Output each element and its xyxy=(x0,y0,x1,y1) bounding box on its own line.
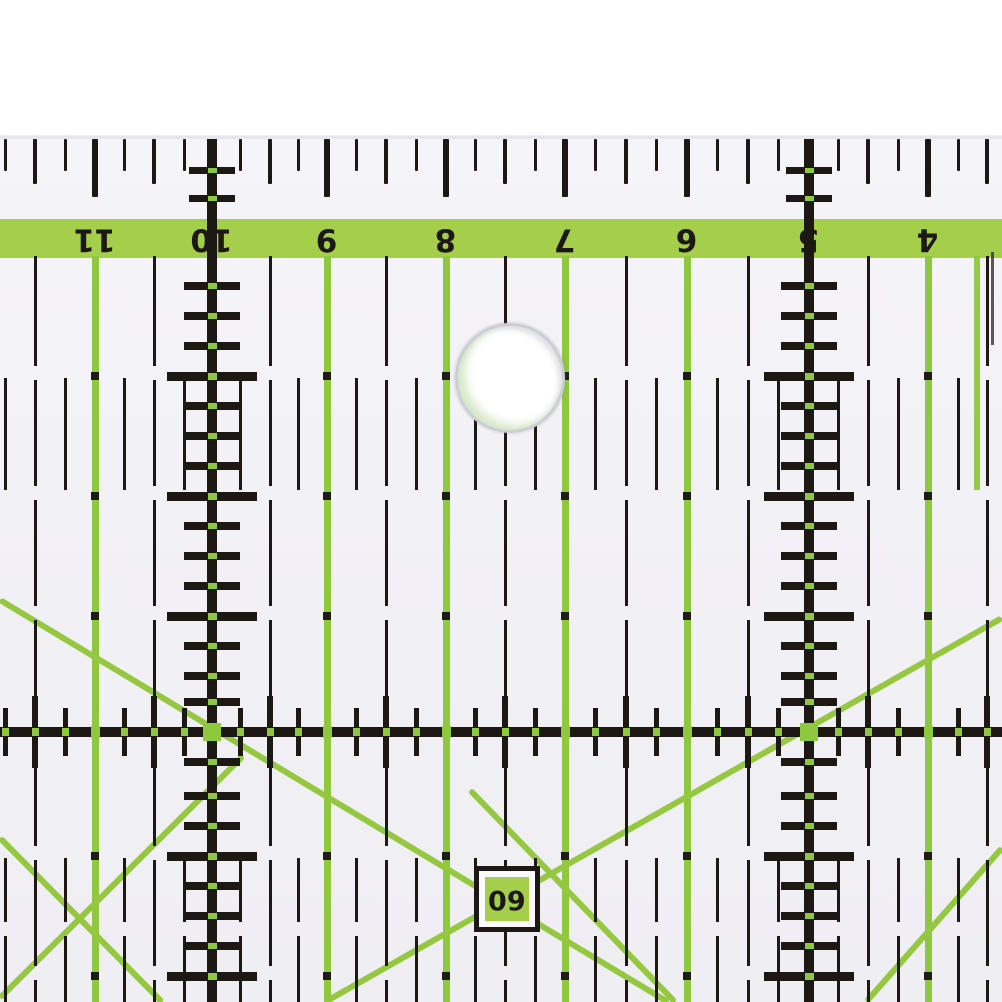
cross-tick-green-center xyxy=(805,403,814,409)
grid-line-dashed-quarter xyxy=(4,858,7,1002)
grid-line-dashed-quarter xyxy=(594,858,597,1002)
cross-tick-green-center xyxy=(984,728,991,736)
grid-dot xyxy=(323,492,331,500)
edge-tick-mark xyxy=(684,139,690,197)
grid-line-green xyxy=(925,256,932,1002)
grid-line-dashed-quarter xyxy=(957,378,960,490)
grid-dot xyxy=(442,972,450,980)
band-number: 7 xyxy=(555,223,576,254)
cross-tick-green-center xyxy=(208,433,217,439)
cross-tick-green-center xyxy=(805,883,814,889)
cross-tick-green-center xyxy=(208,343,217,349)
edge-tick-mark xyxy=(33,139,37,184)
grid-dot xyxy=(91,612,99,620)
cross-tick-green-center xyxy=(237,728,244,736)
grid-line-dashed-half xyxy=(153,256,156,1002)
size-label-box: 60 xyxy=(474,866,540,932)
grid-dot xyxy=(442,492,450,500)
grid-line-dashed-quarter xyxy=(837,378,840,490)
band-number: 6 xyxy=(677,223,698,254)
cross-tick-green-center xyxy=(805,373,814,380)
alignment-hole xyxy=(455,323,565,433)
grid-dot xyxy=(323,852,331,860)
grid-line-dashed-half xyxy=(34,256,37,1002)
cross-tick-green-center xyxy=(805,643,814,649)
band-number: 10 xyxy=(191,223,232,254)
grid-dot xyxy=(683,852,691,860)
cross-tick-green-center xyxy=(745,728,752,736)
edge-tick-mark xyxy=(837,139,840,171)
cross-tick-green-center xyxy=(2,728,9,736)
cross-tick-green-center xyxy=(895,728,902,736)
size-label: 60 xyxy=(488,886,526,913)
cross-tick-green-center xyxy=(208,883,217,889)
cross-tick-green-center xyxy=(121,728,128,736)
grid-dot xyxy=(683,372,691,380)
grid-dot xyxy=(924,372,932,380)
edge-tick-mark xyxy=(534,139,537,171)
cross-tick-green-center xyxy=(208,973,217,980)
cross-tick-green-center xyxy=(208,943,217,949)
grid-dot xyxy=(561,612,569,620)
grid-dot xyxy=(323,612,331,620)
cross-tick-green-center xyxy=(208,553,217,559)
grid-dot xyxy=(924,972,932,980)
cross-tick-green-center xyxy=(653,728,660,736)
grid-dot xyxy=(91,852,99,860)
cross-tick-green-center xyxy=(805,699,814,705)
edge-tick-mark xyxy=(64,139,67,171)
grid-dot xyxy=(924,612,932,620)
grid-line-green xyxy=(443,256,450,1002)
cross-tick-green-center xyxy=(208,523,217,529)
edge-tick-mark xyxy=(746,139,750,184)
edge-tick-mark xyxy=(4,139,7,171)
cross-tick-green-center xyxy=(208,673,217,679)
cross-tick-green-center xyxy=(208,313,217,319)
cross-tick-green-center xyxy=(805,823,814,829)
cross-tick-green-center xyxy=(208,583,217,589)
cross-tick-green-center xyxy=(805,463,814,469)
edge-tick-mark xyxy=(268,139,272,184)
grid-line-dashed-half xyxy=(625,256,628,1002)
band-number: 4 xyxy=(918,223,939,254)
edge-tick-mark xyxy=(415,139,418,171)
edge-tick-mark xyxy=(355,139,358,171)
grid-dot xyxy=(924,492,932,500)
grid-dot xyxy=(924,852,932,860)
grid-line-dashed-half xyxy=(269,256,272,1002)
cross-tick-green-center xyxy=(208,823,217,829)
cross-tick-green-center xyxy=(805,853,814,860)
cross-tick-green-center xyxy=(208,493,217,500)
edge-tick-mark xyxy=(152,139,156,184)
grid-line-dashed-half xyxy=(867,256,870,1002)
grid-line-green xyxy=(974,256,980,490)
cross-tick-green-center xyxy=(805,583,814,589)
edge-tick-mark xyxy=(624,139,628,184)
cross-tick-green-center xyxy=(208,168,217,173)
edge-tick-mark xyxy=(123,139,126,171)
measure-band xyxy=(0,219,1002,258)
cross-tick-green-center xyxy=(805,759,814,765)
grid-dot xyxy=(683,492,691,500)
grid-line-dashed-quarter xyxy=(64,378,67,490)
grid-line-dashed-quarter xyxy=(897,378,900,490)
cross-tick-green-center xyxy=(502,728,509,736)
cross-tick-green-center xyxy=(208,283,217,289)
edge-tick-mark xyxy=(474,139,477,171)
grid-dot xyxy=(323,372,331,380)
grid-line-dashed-quarter xyxy=(123,378,126,490)
cross-tick-green-center xyxy=(32,728,39,736)
grid-line-dashed-half xyxy=(986,256,989,1002)
grid-line-dashed-quarter xyxy=(655,858,658,1002)
cross-tick-green-center xyxy=(208,759,217,765)
cross-tick-green-center xyxy=(805,553,814,559)
grid-dot xyxy=(323,972,331,980)
green-line-crossing xyxy=(323,726,332,738)
cross-tick-green-center xyxy=(805,343,814,349)
cross-tick-green-center xyxy=(62,728,69,736)
grid-dot xyxy=(91,372,99,380)
cross-tick-green-center xyxy=(805,168,814,173)
edge-tick-mark xyxy=(925,139,931,197)
cross-tick-green-center xyxy=(413,728,420,736)
grid-line-dashed-half xyxy=(385,256,388,1002)
cross-tick-green-center xyxy=(805,673,814,679)
cross-tick-green-center xyxy=(208,699,217,705)
grid-line-dashed-quarter xyxy=(355,378,358,490)
cross-tick-green-center xyxy=(353,728,360,736)
green-line-crossing xyxy=(683,726,692,738)
cross-tick-green-center xyxy=(208,913,217,919)
edge-tick-mark xyxy=(384,139,388,184)
cross-tick-green-center xyxy=(151,728,158,736)
band-number: 8 xyxy=(436,223,457,254)
grid-line-dashed-quarter xyxy=(897,858,900,1002)
grid-line-dashed-quarter xyxy=(297,378,300,490)
cross-tick-green-center xyxy=(805,523,814,529)
cross-tick-green-center xyxy=(208,463,217,469)
grid-line-green xyxy=(92,256,99,1002)
cross-tick-green-center xyxy=(955,728,962,736)
cross-tick-green-center xyxy=(805,493,814,500)
grid-line-dashed-quarter xyxy=(64,858,67,1002)
edge-tick-mark xyxy=(866,139,870,184)
cross-tick-green-center xyxy=(208,196,217,201)
cross-tick-green-center xyxy=(532,728,539,736)
cross-tick-green-center xyxy=(805,613,814,620)
grid-line-black-major xyxy=(804,139,814,1002)
ruler-photo: 111098765460 xyxy=(0,0,1002,1002)
ruler-edge-line xyxy=(991,252,994,345)
edge-tick-mark xyxy=(443,139,449,197)
grid-dot xyxy=(683,972,691,980)
cross-tick-green-center xyxy=(805,196,814,201)
grid-line-dashed-quarter xyxy=(594,378,597,490)
band-number: 11 xyxy=(74,223,115,254)
cross-tick-green-center xyxy=(181,728,188,736)
grid-line-green xyxy=(324,256,331,1002)
edge-tick-mark xyxy=(777,139,780,171)
grid-dot xyxy=(91,972,99,980)
cross-tick-green-center xyxy=(775,728,782,736)
edge-tick-mark xyxy=(562,139,568,197)
cross-tick-green-center xyxy=(805,433,814,439)
cross-tick-green-center xyxy=(805,283,814,289)
grid-dot xyxy=(561,972,569,980)
cross-tick-green-center xyxy=(383,728,390,736)
cross-tick-green-center xyxy=(208,643,217,649)
cross-tick-green-center xyxy=(208,403,217,409)
green-line-crossing xyxy=(442,726,451,738)
edge-tick-mark xyxy=(897,139,900,171)
grid-line-dashed-quarter xyxy=(123,858,126,1002)
grid-line-dashed-quarter xyxy=(415,858,418,1002)
cross-tick-green-center xyxy=(208,793,217,799)
grid-dot xyxy=(91,492,99,500)
grid-line-dashed-quarter xyxy=(716,378,719,490)
grid-line-dashed-quarter xyxy=(716,858,719,1002)
edge-tick-mark xyxy=(594,139,597,171)
grid-dot xyxy=(561,492,569,500)
cross-tick-green-center xyxy=(267,728,274,736)
edge-tick-mark xyxy=(985,139,989,184)
edge-tick-mark xyxy=(239,139,242,171)
green-line-crossing xyxy=(561,726,570,738)
cross-tick-green-center xyxy=(865,728,872,736)
cross-tick-green-center xyxy=(714,728,721,736)
edge-tick-mark xyxy=(324,139,330,197)
grid-line-dashed-quarter xyxy=(777,378,780,490)
grid-dot xyxy=(442,852,450,860)
grid-line-dashed-quarter xyxy=(415,378,418,490)
intersection-green-square xyxy=(203,723,221,741)
cross-tick-green-center xyxy=(208,613,217,620)
cross-tick-green-center xyxy=(805,313,814,319)
grid-line-dashed-quarter xyxy=(355,858,358,1002)
cross-tick-green-center xyxy=(805,913,814,919)
green-line-crossing xyxy=(924,726,933,738)
green-line-crossing xyxy=(91,726,100,738)
grid-line-black-major xyxy=(207,139,217,1002)
grid-dot xyxy=(683,612,691,620)
cross-tick-green-center xyxy=(805,973,814,980)
edge-tick-mark xyxy=(716,139,719,171)
edge-tick-mark xyxy=(183,139,186,171)
cross-tick-green-center xyxy=(805,793,814,799)
cross-tick-green-center xyxy=(208,373,217,380)
cross-tick-green-center xyxy=(208,853,217,860)
band-number: 5 xyxy=(799,223,820,254)
edge-tick-mark xyxy=(92,139,98,197)
grid-line-dashed-quarter xyxy=(957,858,960,1002)
intersection-green-square xyxy=(800,723,818,741)
edge-tick-mark xyxy=(297,139,300,171)
size-label-inner: 60 xyxy=(485,877,529,921)
edge-tick-mark xyxy=(655,139,658,171)
cross-tick-green-center xyxy=(835,728,842,736)
band-number: 9 xyxy=(317,223,338,254)
grid-line-dashed-quarter xyxy=(297,858,300,1002)
cross-tick-green-center xyxy=(805,943,814,949)
grid-line-green xyxy=(684,256,691,1002)
cross-tick-green-center xyxy=(592,728,599,736)
cross-tick-green-center xyxy=(623,728,630,736)
grid-dot xyxy=(561,852,569,860)
edge-tick-mark xyxy=(503,139,507,184)
grid-line-dashed-quarter xyxy=(4,378,7,490)
cross-tick-green-center xyxy=(472,728,479,736)
grid-dot xyxy=(442,612,450,620)
cross-tick-green-center xyxy=(295,728,302,736)
grid-line-dashed-quarter xyxy=(655,378,658,490)
grid-dot xyxy=(442,372,450,380)
grid-line-dashed-half xyxy=(747,256,750,1002)
edge-tick-mark xyxy=(957,139,960,171)
